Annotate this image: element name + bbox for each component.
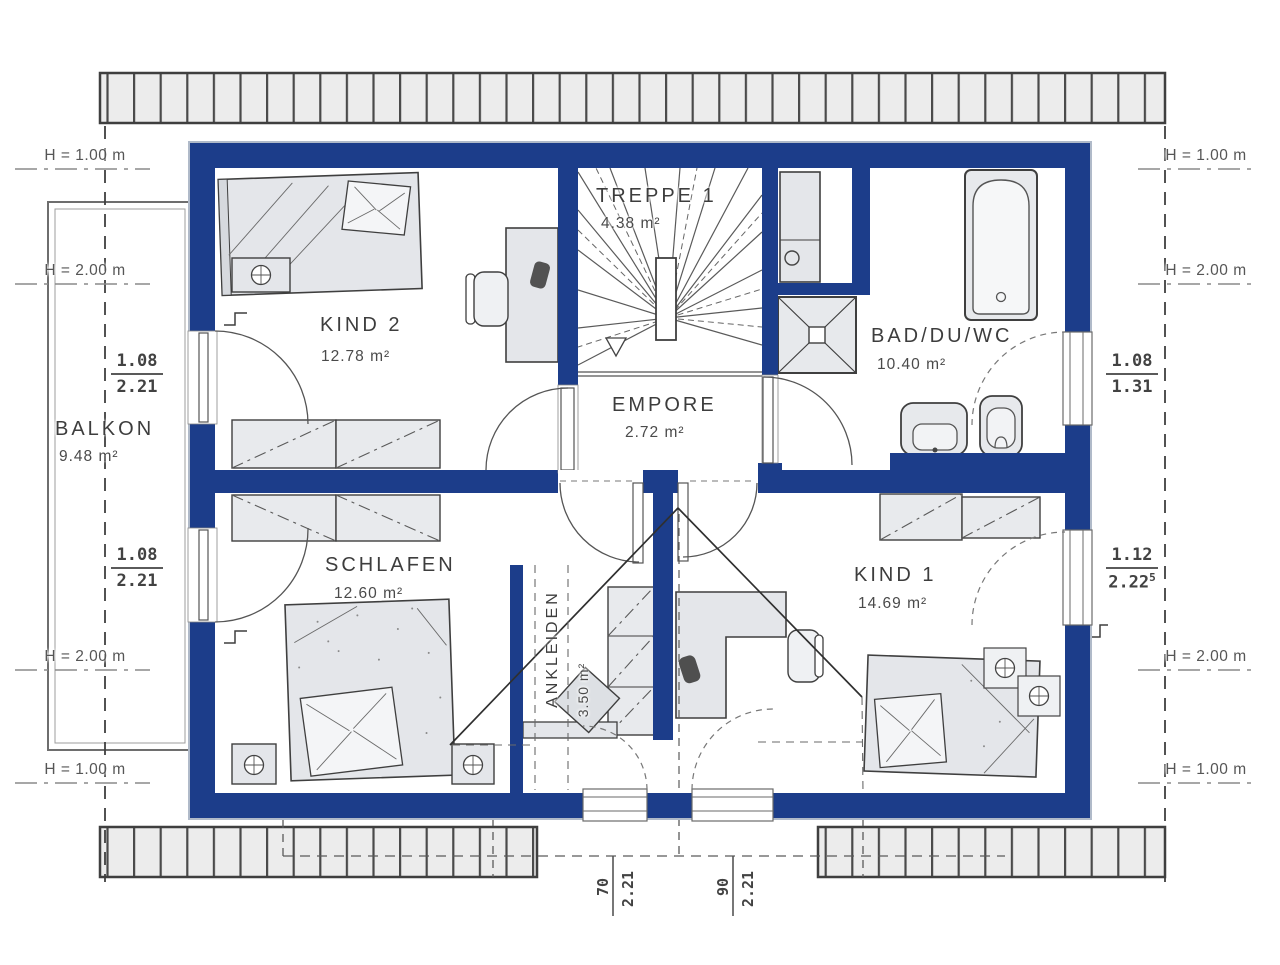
- room-label-treppe1: TREPPE 1: [596, 185, 717, 208]
- floor-plan: KIND 2 12.78 m² TREPPE 1 4.38 m² BAD/DU/…: [0, 0, 1280, 965]
- dim-width: 1.08: [1106, 351, 1159, 375]
- dim-height: 2.225: [1100, 569, 1164, 594]
- height-marker-left-4: H = 1.00 m: [25, 761, 145, 779]
- dim-width: 1.12: [1106, 545, 1159, 569]
- dim-height: 2.21: [105, 569, 169, 592]
- height-marker-right-2: H = 2.00 m: [1146, 262, 1266, 280]
- room-area-schlafen: 12.60 m²: [334, 585, 403, 603]
- roof-overhang-top: [100, 73, 1165, 123]
- height-marker-left-1: H = 1.00 m: [25, 147, 145, 165]
- desk-kind1: [676, 592, 823, 718]
- cabinet: [780, 172, 820, 282]
- bottom-dim-2-width: 90: [714, 867, 732, 907]
- room-area-treppe1: 4.38 m²: [601, 215, 661, 233]
- window-dim-left-top: 1.08 2.21: [105, 351, 169, 399]
- room-area-kind1: 14.69 m²: [858, 595, 927, 613]
- bed-schlafen: [232, 599, 494, 784]
- window-dim-right-top: 1.08 1.31: [1100, 351, 1164, 399]
- room-area-empore: 2.72 m²: [625, 424, 685, 442]
- roof-overhang-bottom-right: [818, 827, 1165, 877]
- room-label-kind2: KIND 2: [320, 314, 402, 337]
- room-label-kind1: KIND 1: [854, 564, 936, 587]
- dim-width: 1.08: [111, 545, 164, 569]
- height-marker-left-2: H = 2.00 m: [25, 262, 145, 280]
- height-marker-right-1: H = 1.00 m: [1146, 147, 1266, 165]
- bottom-dim-1-width: 70: [594, 867, 612, 907]
- ankleiden-furniture: [523, 668, 619, 738]
- dim-height: 2.21: [105, 375, 169, 398]
- height-marker-left-3: H = 2.00 m: [25, 648, 145, 666]
- floor-plan-drawing: [0, 0, 1280, 965]
- bed-kind1: [864, 648, 1060, 777]
- washbasin: [901, 403, 967, 455]
- bottom-dim-1-height: 2.21: [619, 866, 637, 912]
- room-area-kind2: 12.78 m²: [321, 348, 390, 366]
- bed-kind2: [218, 173, 422, 296]
- desk-kind2: [466, 228, 558, 362]
- height-marker-right-3: H = 2.00 m: [1146, 648, 1266, 666]
- room-label-bad: BAD/DU/WC: [871, 325, 1012, 348]
- bathtub: [965, 170, 1037, 320]
- room-label-balkon: BALKON: [55, 418, 154, 441]
- height-marker-right-4: H = 1.00 m: [1146, 761, 1266, 779]
- toilet: [980, 396, 1022, 456]
- window-dim-left-bottom: 1.08 2.21: [105, 545, 169, 593]
- room-area-balkon: 9.48 m²: [59, 448, 119, 466]
- room-label-ankleiden: ANKLEIDEN: [544, 559, 562, 739]
- room-area-ankleiden: 3.50 m²: [575, 645, 591, 735]
- dim-height-value: 2.22: [1108, 573, 1149, 593]
- dim-height-sup: 5: [1149, 571, 1156, 584]
- bottom-dim-2-height: 2.21: [739, 866, 757, 912]
- shower: [778, 297, 856, 373]
- room-label-schlafen: SCHLAFEN: [325, 554, 456, 577]
- dim-width: 1.08: [111, 351, 164, 375]
- room-label-empore: EMPORE: [612, 394, 717, 417]
- roof-overhang-bottom-left: [100, 827, 537, 877]
- dim-height: 1.31: [1100, 375, 1164, 398]
- window-dim-right-bottom: 1.12 2.225: [1100, 545, 1164, 594]
- room-area-bad: 10.40 m²: [877, 356, 946, 374]
